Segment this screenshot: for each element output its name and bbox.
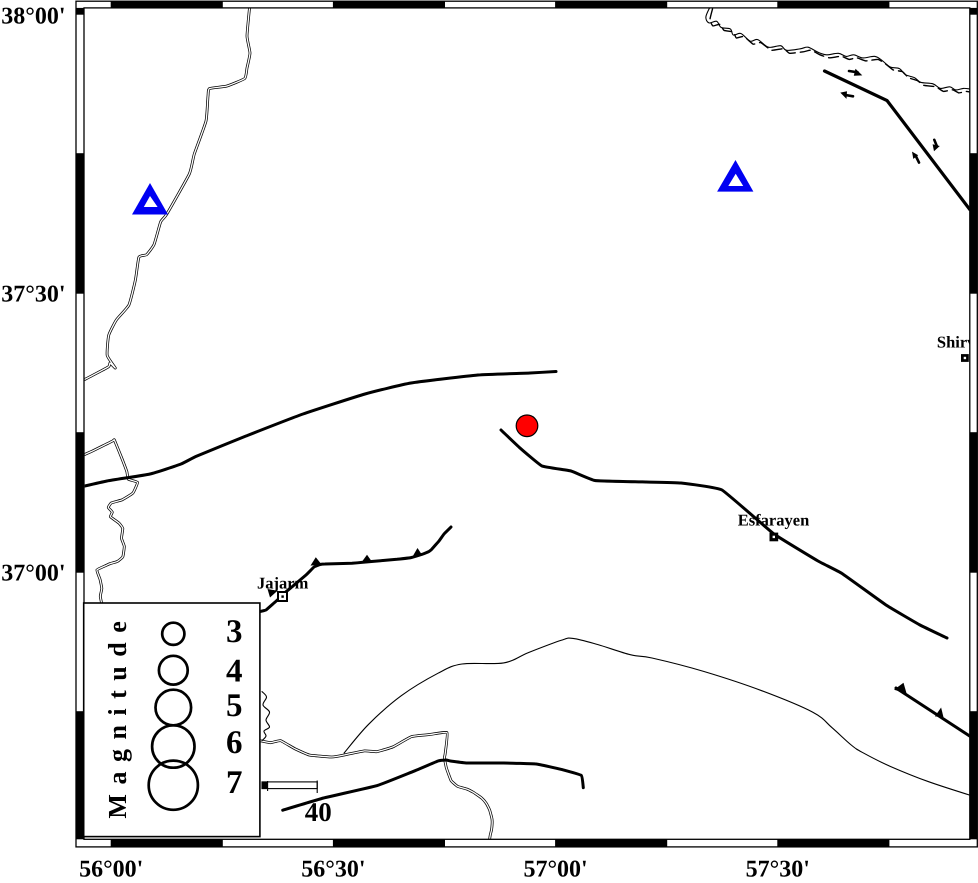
svg-text:4: 4 <box>226 654 243 690</box>
svg-text:Magnitude: Magnitude <box>103 612 132 819</box>
svg-text:40: 40 <box>305 797 332 827</box>
svg-text:38°00': 38°00' <box>1 3 65 29</box>
svg-text:3: 3 <box>226 614 243 650</box>
svg-text:56°30': 56°30' <box>301 856 365 878</box>
svg-text:37°00': 37°00' <box>1 561 65 587</box>
svg-text:56°00': 56°00' <box>79 856 143 878</box>
svg-text:37°30': 37°30' <box>1 282 65 308</box>
svg-text:6: 6 <box>226 725 243 761</box>
svg-text:Esfarayen: Esfarayen <box>738 511 810 530</box>
svg-text:57°00': 57°00' <box>523 856 587 878</box>
svg-text:5: 5 <box>226 688 243 724</box>
svg-text:Jajarm: Jajarm <box>257 573 309 592</box>
svg-text:57°30': 57°30' <box>746 856 810 878</box>
svg-text:7: 7 <box>226 765 243 801</box>
